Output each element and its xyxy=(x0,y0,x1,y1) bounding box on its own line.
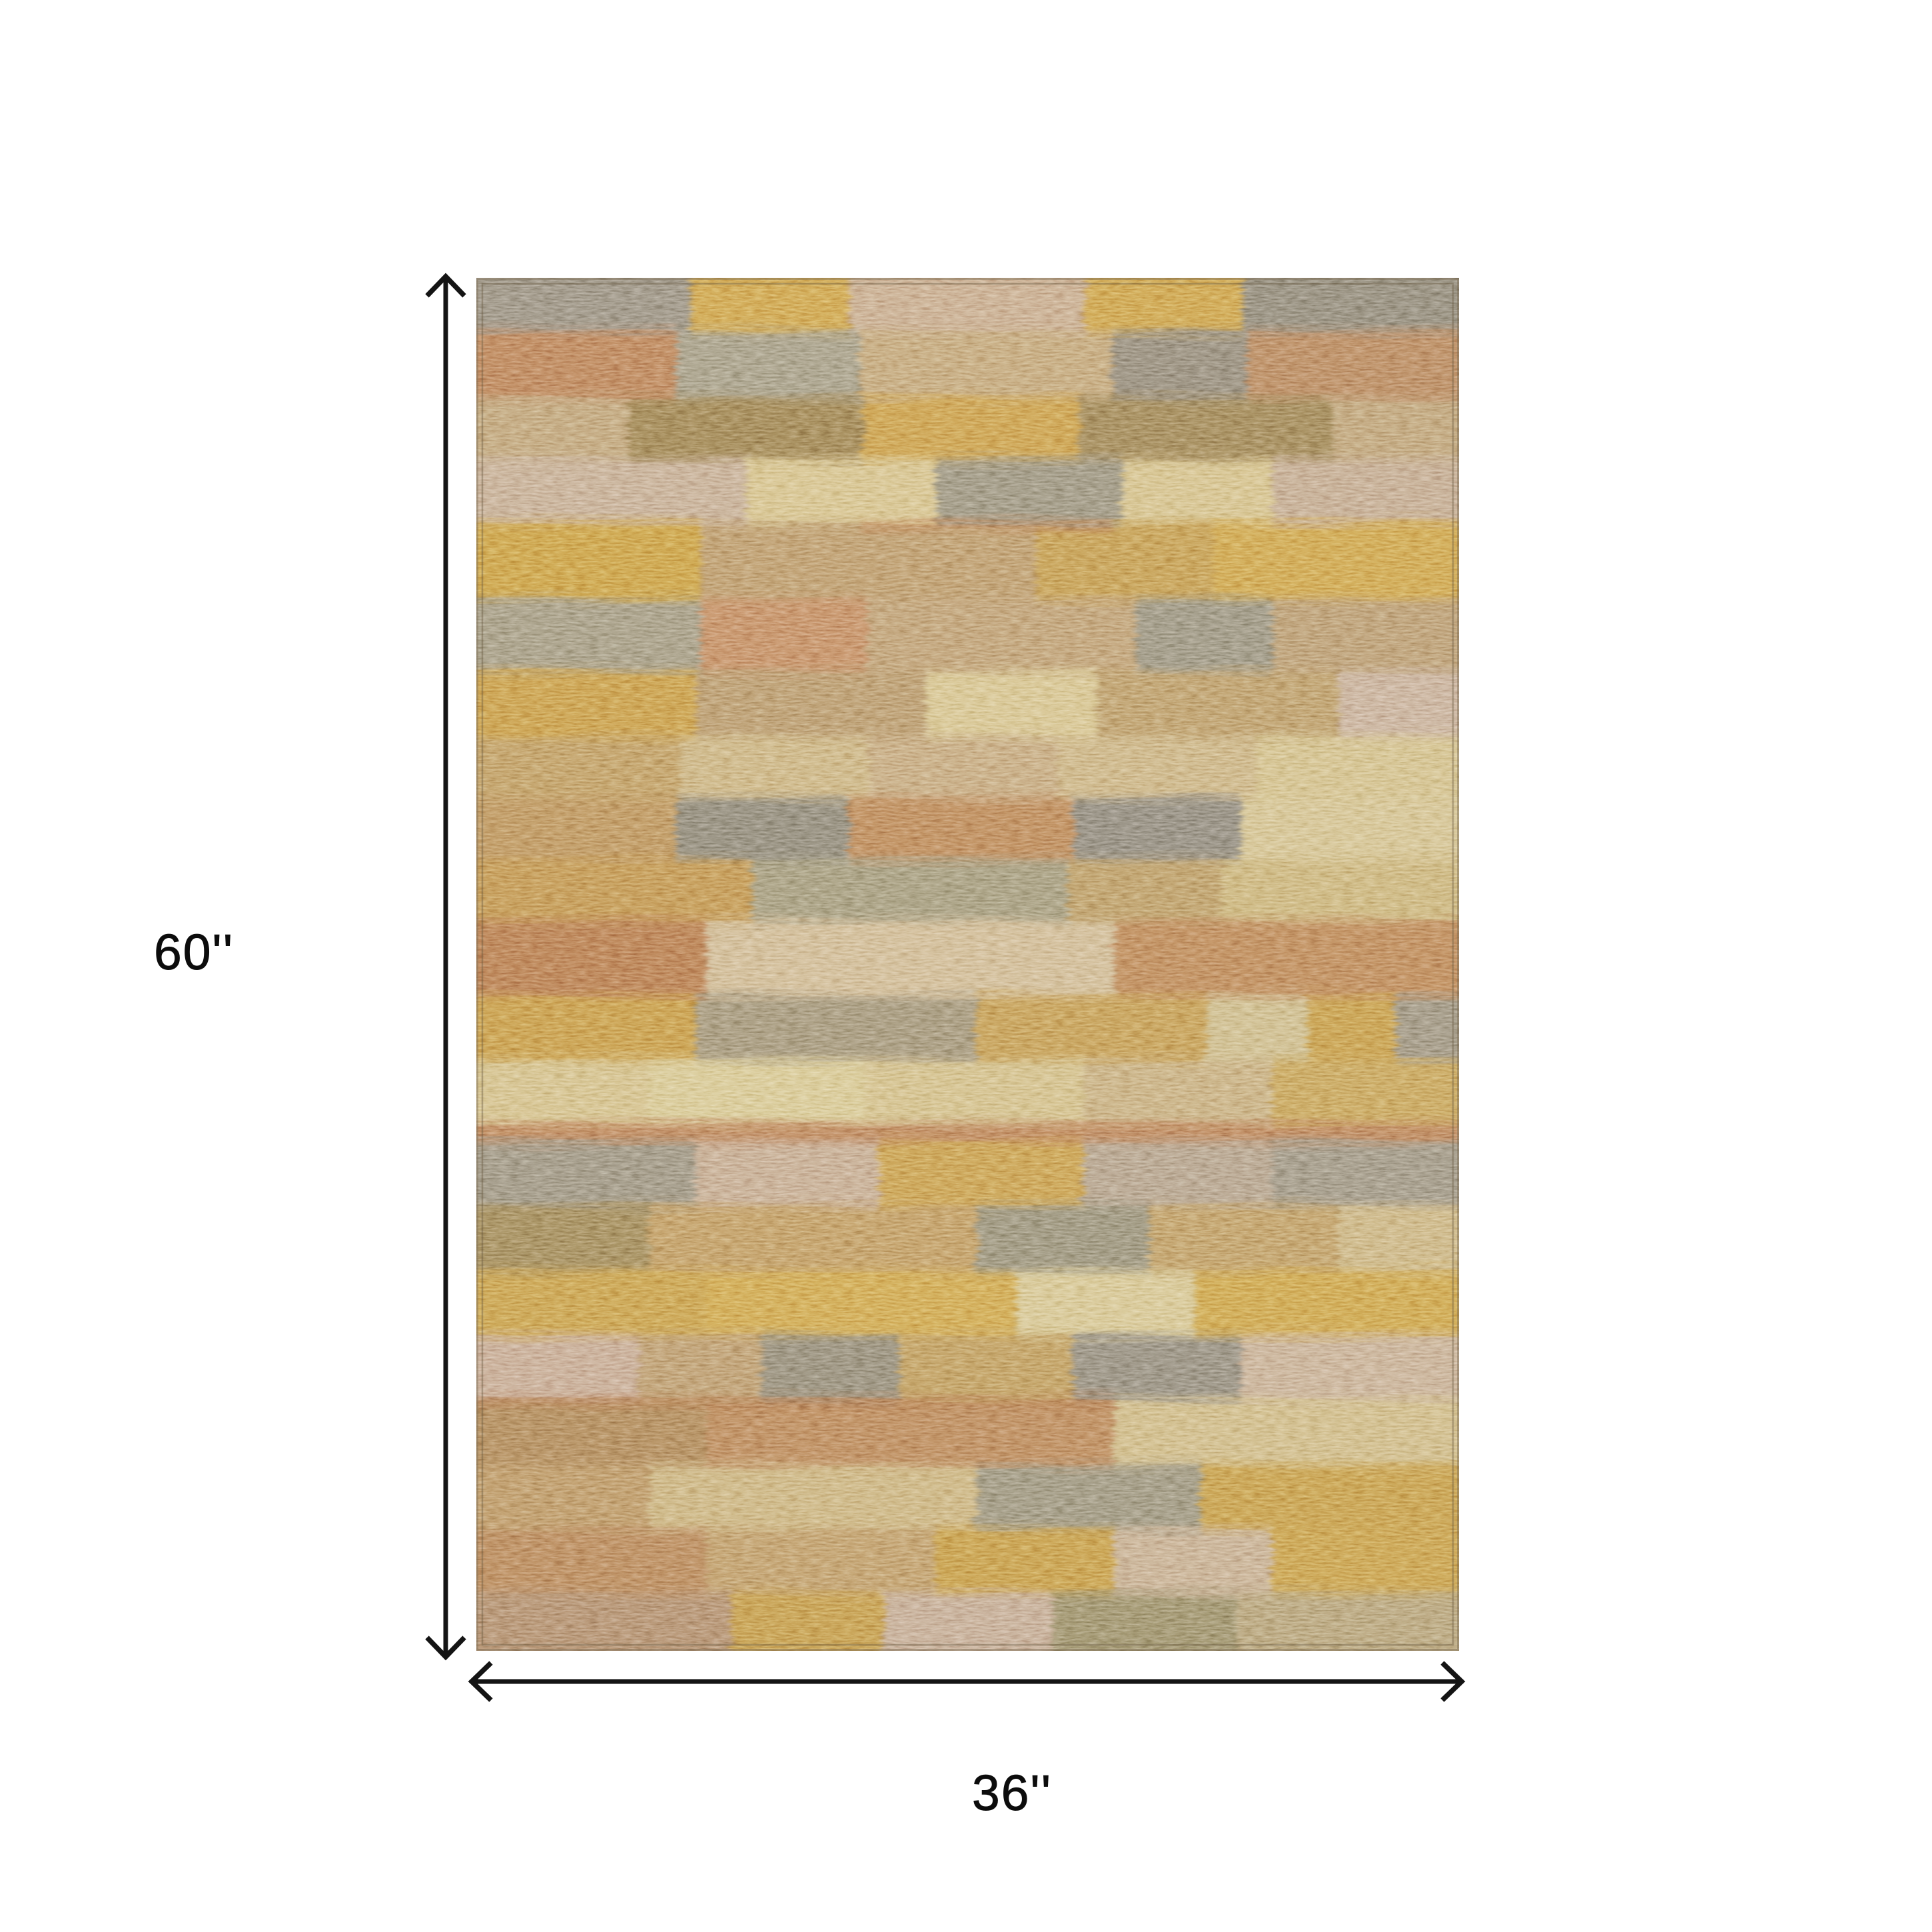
svg-text:60'': 60'' xyxy=(154,924,234,980)
svg-text:36'': 36'' xyxy=(972,1765,1052,1821)
